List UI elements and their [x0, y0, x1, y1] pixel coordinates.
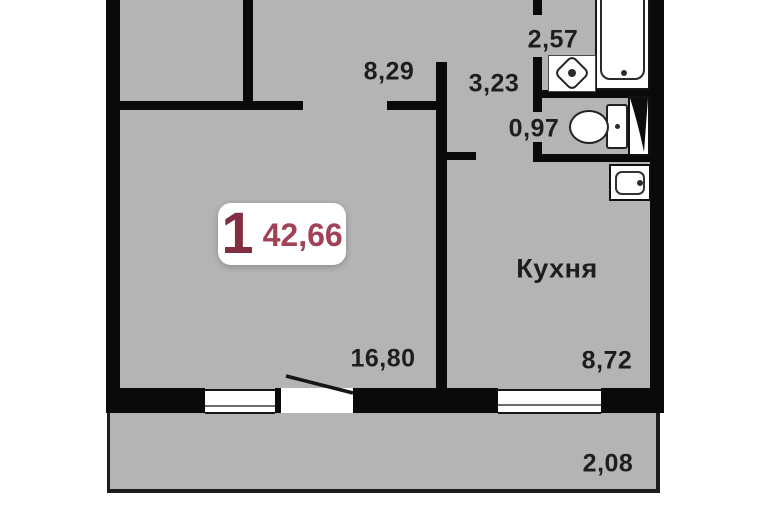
room-label-hall: 8,29	[364, 58, 415, 87]
sink-drain-dot	[568, 69, 576, 77]
balcony-edge-right	[656, 413, 660, 492]
kitchen-sink-drain-dot	[637, 180, 643, 186]
window-icon	[498, 389, 601, 414]
wall-bathroom-left-upper	[533, 0, 542, 15]
window-frame-line	[205, 405, 275, 407]
wall-exterior-left	[106, 0, 120, 413]
room-label-bathroom: 2,57	[528, 26, 579, 55]
balcony-edge-bottom	[107, 489, 660, 493]
balcony-floor	[107, 413, 660, 492]
toilet-bowl	[569, 110, 609, 144]
bathtub-icon	[595, 0, 650, 90]
room-label-kitchen-area: 8,72	[582, 347, 633, 376]
wall-room-divider-top	[243, 0, 253, 110]
window-icon	[205, 389, 275, 414]
toilet-tank-dot	[615, 124, 620, 129]
total-area: 42,66	[263, 217, 343, 254]
balcony-door-icon	[281, 388, 353, 413]
wall-bottom-middle-segment	[353, 388, 498, 413]
wall-exterior-right	[650, 0, 664, 413]
wall-hall-horizontal-left	[106, 101, 303, 110]
wall-wc-left-upper	[533, 98, 542, 112]
room-count: 1	[221, 205, 253, 263]
room-label-living: 16,80	[350, 345, 415, 374]
kitchen-sink-icon	[609, 164, 651, 201]
window-frame-line	[498, 404, 601, 406]
wash-sink-icon	[548, 55, 596, 92]
wall-bottom-left-segment	[106, 388, 205, 413]
bathtub-drain-dot	[621, 70, 627, 76]
wall-bottom-right-segment	[601, 388, 664, 413]
vent-shaft-icon	[628, 96, 650, 156]
toilet-icon	[606, 104, 628, 149]
apartment-type-badge: 1 42,66	[218, 203, 346, 265]
wall-corridor-kitchen-jamb	[447, 152, 476, 160]
room-label-wc: 0,97	[509, 115, 560, 144]
room-label-corridor: 3,23	[469, 70, 520, 99]
floor-plan: 8,29 2,57 3,23 0,97 Кухня 8,72 16,80 2,0…	[0, 0, 770, 510]
balcony-edge-left	[107, 413, 110, 492]
wall-center-vertical	[436, 62, 447, 388]
room-label-balcony: 2,08	[583, 450, 634, 479]
room-name-kitchen: Кухня	[516, 254, 597, 285]
